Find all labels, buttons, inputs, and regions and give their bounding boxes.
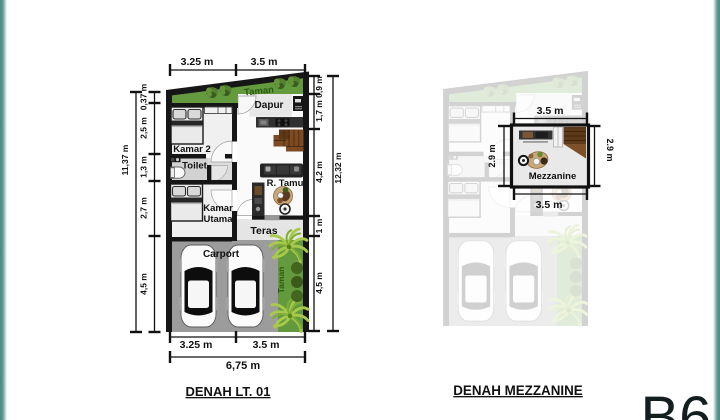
svg-text:2,5 m: 2,5 m xyxy=(139,117,149,139)
svg-text:6,75 m: 6,75 m xyxy=(226,360,260,372)
svg-text:2,7 m: 2,7 m xyxy=(139,197,149,219)
svg-text:4,2 m: 4,2 m xyxy=(314,161,324,183)
svg-text:0,37 m: 0,37 m xyxy=(139,83,149,110)
svg-text:DENAH LT. 01: DENAH LT. 01 xyxy=(186,384,271,399)
svg-text:DENAH MEZZANINE: DENAH MEZZANINE xyxy=(453,383,583,398)
svg-text:3.5 m: 3.5 m xyxy=(253,339,280,351)
svg-text:4,5 m: 4,5 m xyxy=(314,272,324,294)
svg-text:3.25 m: 3.25 m xyxy=(180,339,213,351)
svg-text:2.9 m: 2.9 m xyxy=(605,138,615,161)
svg-text:1,7 m: 1,7 m xyxy=(314,100,324,122)
svg-text:3.25 m: 3.25 m xyxy=(181,56,214,68)
svg-text:B6: B6 xyxy=(641,385,712,420)
svg-text:11,37 m: 11,37 m xyxy=(120,144,130,175)
svg-text:1,3 m: 1,3 m xyxy=(139,156,149,178)
svg-text:3.5 m: 3.5 m xyxy=(251,56,278,68)
svg-text:3.5 m: 3.5 m xyxy=(536,199,563,211)
svg-text:2.9 m: 2.9 m xyxy=(487,144,497,167)
svg-text:4,5 m: 4,5 m xyxy=(139,273,149,295)
svg-text:Mezzanine: Mezzanine xyxy=(529,171,577,182)
svg-text:1 m: 1 m xyxy=(314,218,324,233)
svg-text:3.5 m: 3.5 m xyxy=(537,105,564,117)
svg-text:12,32 m: 12,32 m xyxy=(333,152,343,184)
svg-text:0,9 m: 0,9 m xyxy=(314,76,324,98)
